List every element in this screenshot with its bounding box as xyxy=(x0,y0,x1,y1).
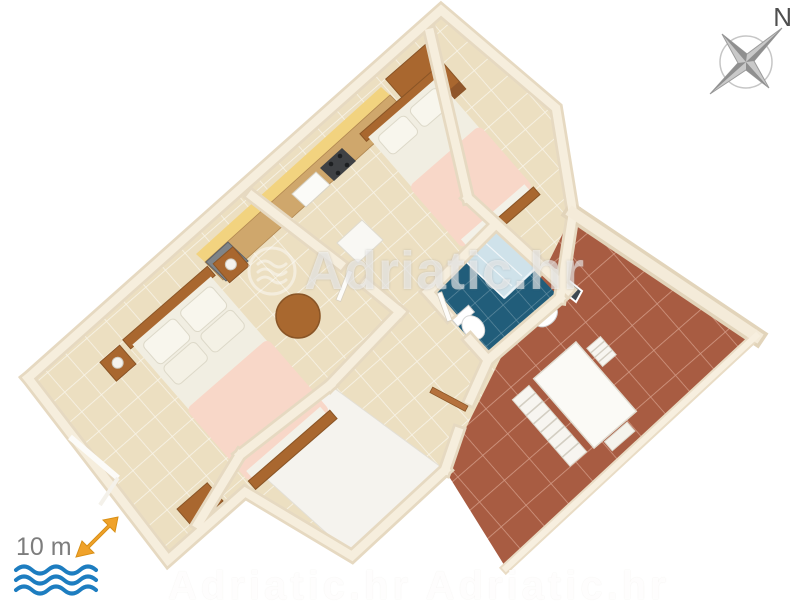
sea-waves-icon xyxy=(12,563,108,599)
apartment-floor-plan xyxy=(0,0,800,600)
distance-label: 10 m xyxy=(16,533,72,562)
bottom-watermark-text: Adriatic.hr Adriatic.hr xyxy=(168,564,670,609)
compass-north-label: N xyxy=(773,2,792,33)
arrow-to-sea-icon xyxy=(72,515,120,561)
floor-plan-canvas: N 10 m Adriatic.hr Adriatic.hr Adriatic.… xyxy=(0,0,800,600)
dining-round-table xyxy=(276,294,320,338)
compass: N xyxy=(694,2,798,106)
sea-distance-indicator: 10 m xyxy=(10,515,140,600)
